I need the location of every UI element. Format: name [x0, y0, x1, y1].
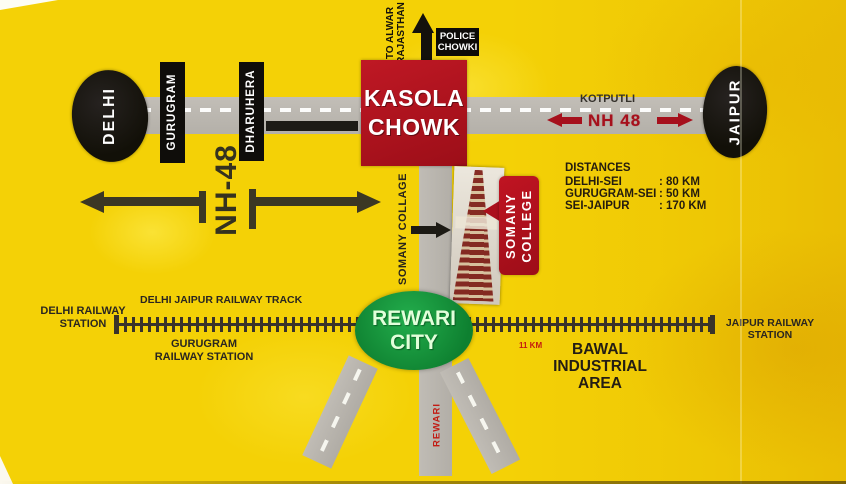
- paper-fold-line: [740, 0, 742, 484]
- kotputli-label: KOTPUTLI: [580, 93, 635, 105]
- bawal-line3: AREA: [540, 375, 660, 392]
- kasola-chowk-box: KASOLA CHOWK: [361, 60, 467, 166]
- branch-road-right-dashes: [456, 371, 504, 460]
- somany-college-route-map: DELHI JAIPUR RAILWAY TRACK DELHI RAILWAY…: [0, 0, 846, 484]
- distance-row: DELHI-SEI : 80 KM: [565, 176, 735, 188]
- rewari-road-label: REWARI: [432, 403, 443, 447]
- distance-label: GURUGRAM-SEI: [565, 188, 659, 200]
- dharuhera-label: DHARUHERA: [245, 69, 257, 152]
- distance-label: DELHI-SEI: [565, 176, 659, 188]
- bawal-line1: BAWAL: [540, 341, 660, 358]
- delhi-city-label: DELHI: [101, 87, 119, 145]
- delhi-railway-station-line2: STATION: [38, 318, 128, 331]
- nh48-red-right-arrow-shaft: [657, 117, 679, 124]
- somany-college-callout-label: SOMANY COLLEGE: [503, 189, 535, 262]
- railway-track-right-end: [710, 315, 715, 334]
- scan-corner-top-left: [0, 0, 58, 10]
- nh48-shield-label: NH 48: [588, 111, 641, 131]
- rewari-city-oval: REWARI CITY: [355, 291, 473, 370]
- to-alwar-line2: RAJASTHAN: [396, 2, 407, 64]
- gurugram-railway-station-label: GURUGRAM RAILWAY STATION: [148, 338, 260, 363]
- north-arrow-shaft: [421, 31, 432, 62]
- distance-value: : 170 KM: [659, 200, 706, 212]
- distance-row: SEI-JAIPUR : 170 KM: [565, 200, 735, 212]
- to-alwar-line1: TO ALWAR: [385, 2, 396, 64]
- distance-11km-label: 11 KM: [519, 341, 542, 350]
- gurugram-label: GURUGRAM: [166, 74, 178, 151]
- north-arrowhead: [412, 13, 434, 33]
- to-alwar-rajasthan-label: TO ALWAR RAJASTHAN: [385, 2, 407, 64]
- jaipur-railway-station-line2: STATION: [720, 329, 820, 341]
- branch-road-left-dashes: [318, 369, 361, 456]
- right-direction-arrow-tail: [249, 189, 256, 229]
- somany-collage-road-label: SOMANY COLLAGE: [397, 173, 409, 285]
- distance-value: : 50 KM: [659, 188, 700, 200]
- left-direction-arrow-shaft: [100, 197, 200, 206]
- nh48-red-right-arrowhead: [678, 113, 693, 127]
- nh48-red-left-arrow-shaft: [560, 117, 582, 124]
- road-dark-marking: [266, 121, 358, 131]
- distance-value: : 80 KM: [659, 176, 700, 188]
- bawal-line2: INDUSTRIAL: [540, 358, 660, 375]
- distance-label: SEI-JAIPUR: [565, 200, 659, 212]
- police-chowki-label: POLICE CHOWKI: [436, 28, 479, 56]
- rewari-city-line2: CITY: [390, 331, 438, 355]
- scan-corner-bottom-left: [0, 456, 13, 484]
- railway-track-label: DELHI JAIPUR RAILWAY TRACK: [140, 294, 302, 306]
- kasola-chowk-line1: KASOLA: [364, 84, 464, 113]
- somany-college-arrowhead: [436, 222, 451, 238]
- distance-row: GURUGRAM-SEI : 50 KM: [565, 188, 735, 200]
- somany-college-callout-line2: COLLEGE: [519, 189, 535, 262]
- kasola-chowk-line2: CHOWK: [368, 113, 460, 142]
- jaipur-railway-station-label: JAIPUR RAILWAY STATION: [720, 317, 820, 341]
- police-chowki-line2: CHOWKI: [436, 42, 479, 53]
- police-chowki-line1: POLICE: [436, 31, 479, 42]
- bawal-industrial-area-label: BAWAL INDUSTRIAL AREA: [540, 341, 660, 392]
- gurugram-railway-station-line1: GURUGRAM: [148, 338, 260, 351]
- somany-college-arrow-shaft: [411, 226, 438, 234]
- delhi-railway-station-line1: DELHI RAILWAY: [38, 305, 128, 318]
- left-direction-arrow-tail: [199, 191, 206, 223]
- somany-college-callout-line1: SOMANY: [503, 189, 519, 262]
- distances-panel: DISTANCES DELHI-SEI : 80 KM GURUGRAM-SEI…: [565, 162, 735, 212]
- rewari-city-line1: REWARI: [372, 307, 456, 331]
- college-tower-illustration: [453, 169, 500, 301]
- gurugram-railway-station-line2: RAILWAY STATION: [148, 351, 260, 364]
- right-direction-arrowhead: [357, 191, 381, 213]
- branch-road-left: [302, 355, 377, 468]
- delhi-railway-station-label: DELHI RAILWAY STATION: [38, 305, 128, 330]
- distances-heading: DISTANCES: [565, 162, 735, 174]
- somany-college-building-photo: [450, 166, 505, 305]
- right-direction-arrow-shaft: [255, 197, 359, 206]
- jaipur-railway-station-line1: JAIPUR RAILWAY: [720, 317, 820, 329]
